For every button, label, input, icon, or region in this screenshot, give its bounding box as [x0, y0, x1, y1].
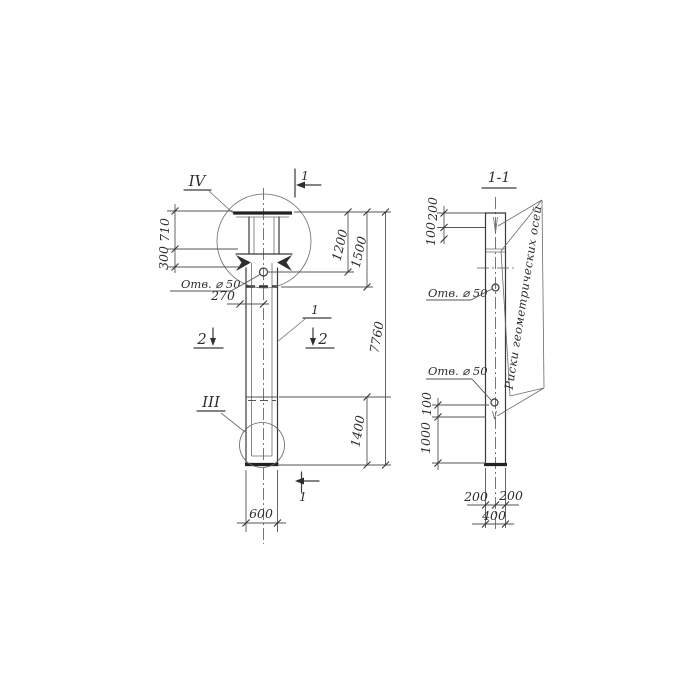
column-shaft — [245, 263, 279, 465]
hole-callout-lower: Отв. ⌀ 50 — [426, 364, 491, 400]
dim-1500-label: 1500 — [348, 235, 370, 269]
detail-marker-iii: III — [201, 393, 221, 411]
hole-label-upper: Отв. ⌀ 50 — [428, 286, 488, 300]
dim-100-top-label: 100 — [423, 222, 438, 246]
technical-drawing: IV III Отв. ⌀ 50 270 — [0, 0, 700, 700]
dim-1400: 1400 — [347, 394, 370, 469]
section-1-label-top: 1 — [301, 168, 309, 183]
hole-section-lower — [491, 399, 498, 406]
corbel-arrow-right — [277, 255, 292, 271]
drawing-sheet: IV III Отв. ⌀ 50 270 — [0, 0, 700, 700]
detail-circle-top — [217, 194, 311, 288]
dim-1000-label: 1000 — [418, 422, 433, 454]
section-mark-1-top: 1 — [295, 168, 321, 197]
section-title: 1-1 — [482, 170, 516, 188]
left-view: IV III Отв. ⌀ 50 270 — [156, 168, 391, 544]
section-1-label-bottom: 1 — [299, 489, 307, 504]
corbel-arrow-left — [236, 255, 251, 271]
axes-note-label: Риски геометрических осей — [501, 204, 544, 391]
detail-marker-iv: IV — [188, 172, 208, 190]
section-mark-1-bottom: 1 — [295, 472, 319, 504]
dims-section-lower: 100 1000 — [418, 392, 489, 470]
dims-section-bottom: 200 200 400 — [463, 468, 523, 528]
dims-section-top: 200 100 — [423, 197, 485, 246]
section-2-label-left: 2 — [196, 330, 207, 348]
section-mark-2-left: 2 — [194, 328, 223, 348]
dim-270-label: 270 — [210, 288, 235, 303]
dim-300-label: 300 — [156, 246, 171, 270]
upper-column — [249, 217, 279, 254]
dim-1200-label: 1200 — [329, 228, 351, 262]
dim-600: 600 — [237, 470, 286, 532]
hole-label-lower: Отв. ⌀ 50 — [428, 364, 488, 378]
hole-callout-upper: Отв. ⌀ 50 — [426, 286, 492, 300]
detail-callout-iii: III — [197, 393, 245, 432]
part-callout-label: 1 — [311, 302, 319, 317]
dim-200-right-label: 200 — [498, 488, 523, 503]
dim-7760: 7760 — [366, 209, 389, 469]
dim-7760-label: 7760 — [366, 320, 386, 354]
dims-left: 710 300 — [156, 204, 240, 273]
dim-200-left-label: 200 — [463, 489, 488, 504]
dim-1500: 1500 — [348, 209, 371, 291]
dim-400-label: 400 — [481, 508, 506, 523]
detail-callout-iv: IV — [184, 172, 234, 214]
section-mark-2-right: 2 — [306, 328, 334, 348]
section-view: 1-1 200 100 — [418, 170, 545, 531]
dim-600-label: 600 — [249, 506, 273, 521]
dim-710-label: 710 — [157, 218, 172, 242]
section-title-label: 1-1 — [488, 170, 511, 186]
dim-1400-label: 1400 — [347, 414, 367, 448]
axes-note-callout: Риски геометрических осей — [497, 200, 545, 416]
dim-200-top-label: 200 — [425, 197, 440, 222]
section-2-label-right: 2 — [317, 330, 328, 348]
dim-100-lower-label: 100 — [419, 392, 434, 416]
